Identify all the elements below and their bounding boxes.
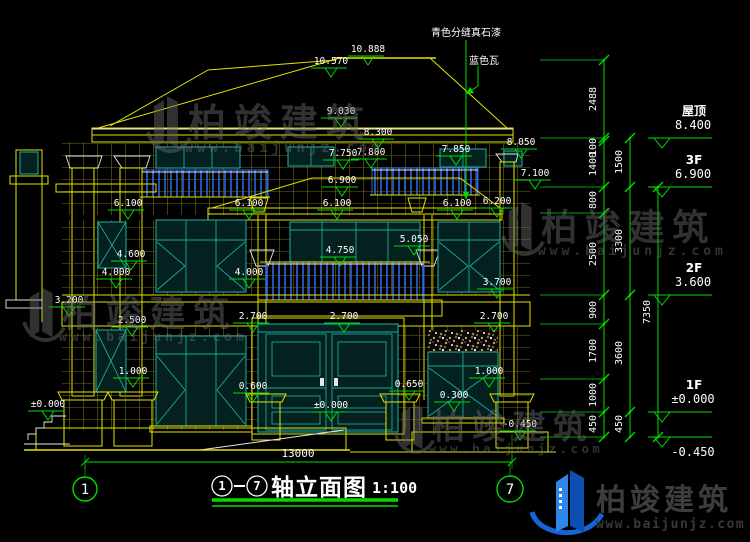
elevation-value: 6.200 bbox=[483, 196, 512, 207]
bottom-dimension-text: 13000 bbox=[281, 447, 314, 460]
elevation-value: 2.700 bbox=[239, 311, 268, 322]
elevation-value: 4.750 bbox=[326, 245, 355, 256]
floor-name: 2F bbox=[686, 261, 703, 275]
floor-elevation: 3.600 bbox=[675, 275, 711, 289]
watermark-text: 柏竣建筑 bbox=[62, 292, 237, 335]
elevation-value: 4.000 bbox=[102, 267, 131, 278]
elevation-value: 7.850 bbox=[442, 144, 471, 155]
elevation-value: 7.100 bbox=[521, 168, 550, 179]
watermark-text: 柏竣建筑 bbox=[541, 206, 716, 249]
elevation-value: 2.700 bbox=[480, 311, 509, 322]
elevation-value: 4.600 bbox=[117, 249, 146, 260]
elevation-value: 1.000 bbox=[475, 366, 504, 377]
material-note: 青色分缝真石漆 bbox=[431, 26, 501, 39]
svg-text:www.baijunjz.com: www.baijunjz.com bbox=[596, 517, 745, 532]
window bbox=[156, 220, 246, 292]
svg-text:柏竣建筑: 柏竣建筑 bbox=[596, 483, 732, 518]
axis-bubble-left: 1 bbox=[81, 482, 89, 498]
watermark-url: www.baijunjz.com bbox=[185, 140, 384, 156]
chain-dimension: 1000 bbox=[588, 383, 599, 407]
elevation-value: 2.700 bbox=[330, 311, 359, 322]
chain-dimension: 7350 bbox=[642, 300, 653, 324]
watermark: 柏竣建筑www.baijunjz.com bbox=[148, 96, 383, 156]
bottom-dimension-value: 13000 bbox=[281, 447, 314, 460]
door-handle bbox=[334, 378, 338, 386]
chain-dimension: 900 bbox=[588, 301, 599, 319]
chain-dimension: 1700 bbox=[588, 339, 599, 363]
watermark-url: www.baijunjz.com bbox=[59, 329, 248, 345]
svg-text:7: 7 bbox=[253, 479, 260, 493]
elevation-value: 10.888 bbox=[351, 44, 386, 55]
svg-text:1: 1 bbox=[218, 479, 225, 493]
elevation-value: 4.000 bbox=[235, 267, 264, 278]
floor-name: 屋顶 bbox=[682, 104, 706, 118]
elevation-value: 5.050 bbox=[400, 234, 429, 245]
left-bay bbox=[6, 150, 48, 322]
door-handle bbox=[320, 378, 324, 386]
chain-dimension: 2488 bbox=[588, 87, 599, 111]
elevation-value: 6.100 bbox=[114, 198, 143, 209]
watermark-text: 柏竣建筑 bbox=[431, 408, 593, 447]
watermark-text: 柏竣建筑 bbox=[188, 101, 372, 145]
tile-note: 蓝色瓦 bbox=[469, 54, 499, 67]
axis-bubble-right: 7 bbox=[506, 482, 514, 498]
window bbox=[150, 336, 252, 432]
chain-dimension: 450 bbox=[614, 415, 625, 433]
floor-elevation: 8.400 bbox=[675, 118, 711, 132]
svg-text:轴立面图: 轴立面图 bbox=[271, 474, 367, 501]
brand-logo: 柏竣建筑 www.baijunjz.com bbox=[532, 470, 745, 533]
logo-building-icon bbox=[570, 470, 584, 532]
watermark-url: www.baijunjz.com bbox=[538, 243, 727, 259]
chain-dimension: 1400 bbox=[588, 152, 599, 176]
watermark-url: www.baijunjz.com bbox=[428, 442, 603, 456]
title-block: 1 7 轴立面图 1:100 bbox=[212, 474, 417, 506]
chain-dimension: 3600 bbox=[614, 341, 625, 365]
elevation-value: ±0.000 bbox=[314, 400, 349, 411]
elevation-value: 0.300 bbox=[440, 390, 469, 401]
watermark: 柏竣建筑www.baijunjz.com bbox=[503, 202, 727, 259]
floor-name: 3F bbox=[686, 153, 703, 167]
elevation-value: 1.000 bbox=[119, 366, 148, 377]
floor-elevation: ±0.000 bbox=[671, 392, 714, 406]
elevation-value: 6.900 bbox=[328, 175, 357, 186]
elevation-value: 3.700 bbox=[483, 277, 512, 288]
elevation-value: 6.100 bbox=[443, 198, 472, 209]
elevation-value: 6.100 bbox=[323, 198, 352, 209]
floor-name: 1F bbox=[686, 378, 703, 392]
balcony-railing bbox=[258, 262, 442, 316]
chain-dimension: 1500 bbox=[614, 150, 625, 174]
floor-elevation: -0.450 bbox=[671, 445, 714, 459]
elevation-value: 6.100 bbox=[235, 198, 264, 209]
elevation-value: 0.650 bbox=[395, 379, 424, 390]
drawing-canvas: 1 7 1 7 轴立面图 1:100 248810014008002500900… bbox=[0, 0, 750, 542]
elevation-value: 8.050 bbox=[507, 137, 536, 148]
elevation-value: ±0.000 bbox=[31, 399, 66, 410]
elevation-value: 10.570 bbox=[314, 56, 349, 67]
cad-elevation-drawing: 1 7 1 7 轴立面图 1:100 248810014008002500900… bbox=[0, 0, 750, 542]
floor-elevation: 6.900 bbox=[675, 167, 711, 181]
svg-text:1:100: 1:100 bbox=[372, 479, 417, 497]
elevation-value: 0.600 bbox=[239, 381, 268, 392]
